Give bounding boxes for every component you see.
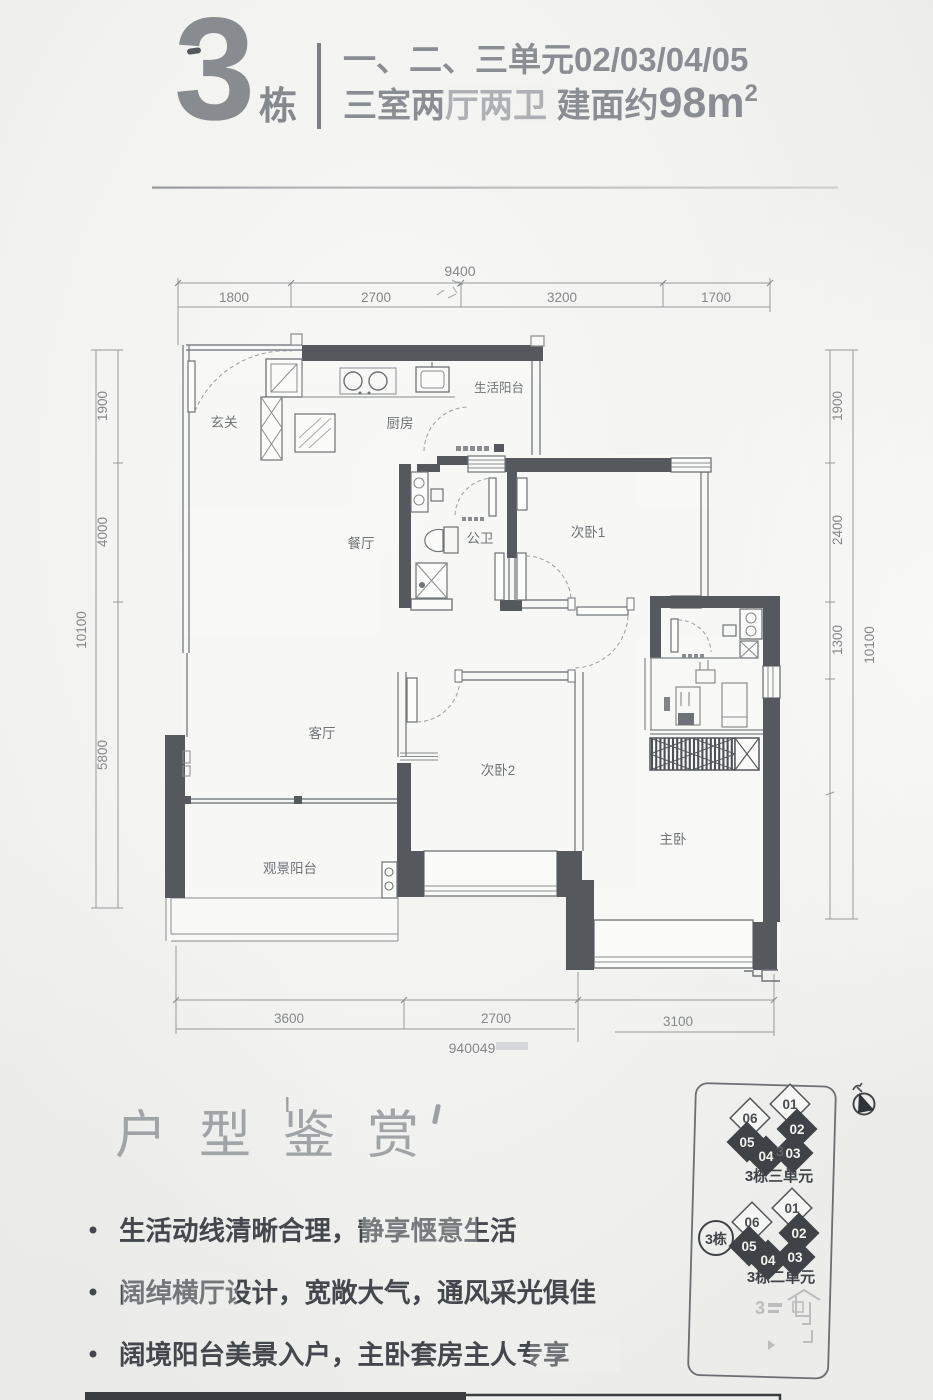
svg-text:1900: 1900 xyxy=(830,391,845,421)
svg-text:栋: 栋 xyxy=(259,86,297,128)
svg-text:3: 3 xyxy=(755,1298,765,1318)
svg-text:次卧2: 次卧2 xyxy=(481,763,516,778)
svg-text:01: 01 xyxy=(782,1097,798,1112)
svg-text:2700: 2700 xyxy=(361,290,391,305)
svg-text:04: 04 xyxy=(758,1149,774,1164)
svg-text:3栋二单元: 3栋二单元 xyxy=(747,1268,815,1286)
svg-text:次卧1: 次卧1 xyxy=(571,525,606,540)
svg-text:1300: 1300 xyxy=(830,625,845,655)
svg-text:3栋: 3栋 xyxy=(705,1231,727,1247)
svg-text:4000: 4000 xyxy=(95,517,110,547)
svg-text:02: 02 xyxy=(789,1122,804,1137)
svg-text:03: 03 xyxy=(785,1146,801,1161)
svg-text:3100: 3100 xyxy=(663,1014,693,1029)
svg-text:05: 05 xyxy=(739,1135,755,1150)
svg-text:户型鉴赏: 户型鉴赏 xyxy=(115,1107,451,1165)
svg-text:04: 04 xyxy=(760,1253,776,1268)
svg-text:3600: 3600 xyxy=(274,1011,304,1026)
svg-text:3栋三单元: 3栋三单元 xyxy=(745,1167,813,1185)
svg-text:1800: 1800 xyxy=(219,290,249,305)
svg-text:主卧: 主卧 xyxy=(660,832,687,847)
svg-text:3200: 3200 xyxy=(547,290,577,305)
svg-text:3: 3 xyxy=(174,0,255,150)
svg-text:1900: 1900 xyxy=(95,391,110,421)
svg-text:06: 06 xyxy=(744,1215,760,1230)
svg-text:客厅: 客厅 xyxy=(309,725,336,741)
svg-text:阔境阳台美景入户，主卧套房主人专享: 阔境阳台美景入户，主卧套房主人专享 xyxy=(119,1340,570,1370)
svg-text:940049: 940049 xyxy=(449,1040,496,1056)
svg-text:玄关: 玄关 xyxy=(211,414,238,430)
svg-text:2700: 2700 xyxy=(481,1011,511,1026)
svg-text:02: 02 xyxy=(791,1226,806,1241)
svg-text:5800: 5800 xyxy=(95,740,110,770)
svg-text:03: 03 xyxy=(787,1250,803,1265)
svg-text:10100: 10100 xyxy=(862,626,877,664)
svg-text:01: 01 xyxy=(784,1201,800,1216)
svg-text:2400: 2400 xyxy=(830,515,845,545)
svg-text:06: 06 xyxy=(742,1111,758,1126)
svg-text:一、二、三单元02/03/04/05: 一、二、三单元02/03/04/05 xyxy=(343,41,748,78)
svg-text:1700: 1700 xyxy=(701,290,731,305)
svg-text:05: 05 xyxy=(741,1239,757,1254)
svg-text:9400: 9400 xyxy=(444,263,475,279)
svg-text:观景阳台: 观景阳台 xyxy=(263,861,317,876)
svg-text:10100: 10100 xyxy=(74,611,89,649)
svg-text:生活阳台: 生活阳台 xyxy=(474,380,524,395)
svg-text:3: 3 xyxy=(776,1143,784,1159)
svg-text:厨房: 厨房 xyxy=(387,416,414,431)
svg-text:餐厅: 餐厅 xyxy=(348,536,375,551)
svg-text:公卫: 公卫 xyxy=(467,531,494,546)
